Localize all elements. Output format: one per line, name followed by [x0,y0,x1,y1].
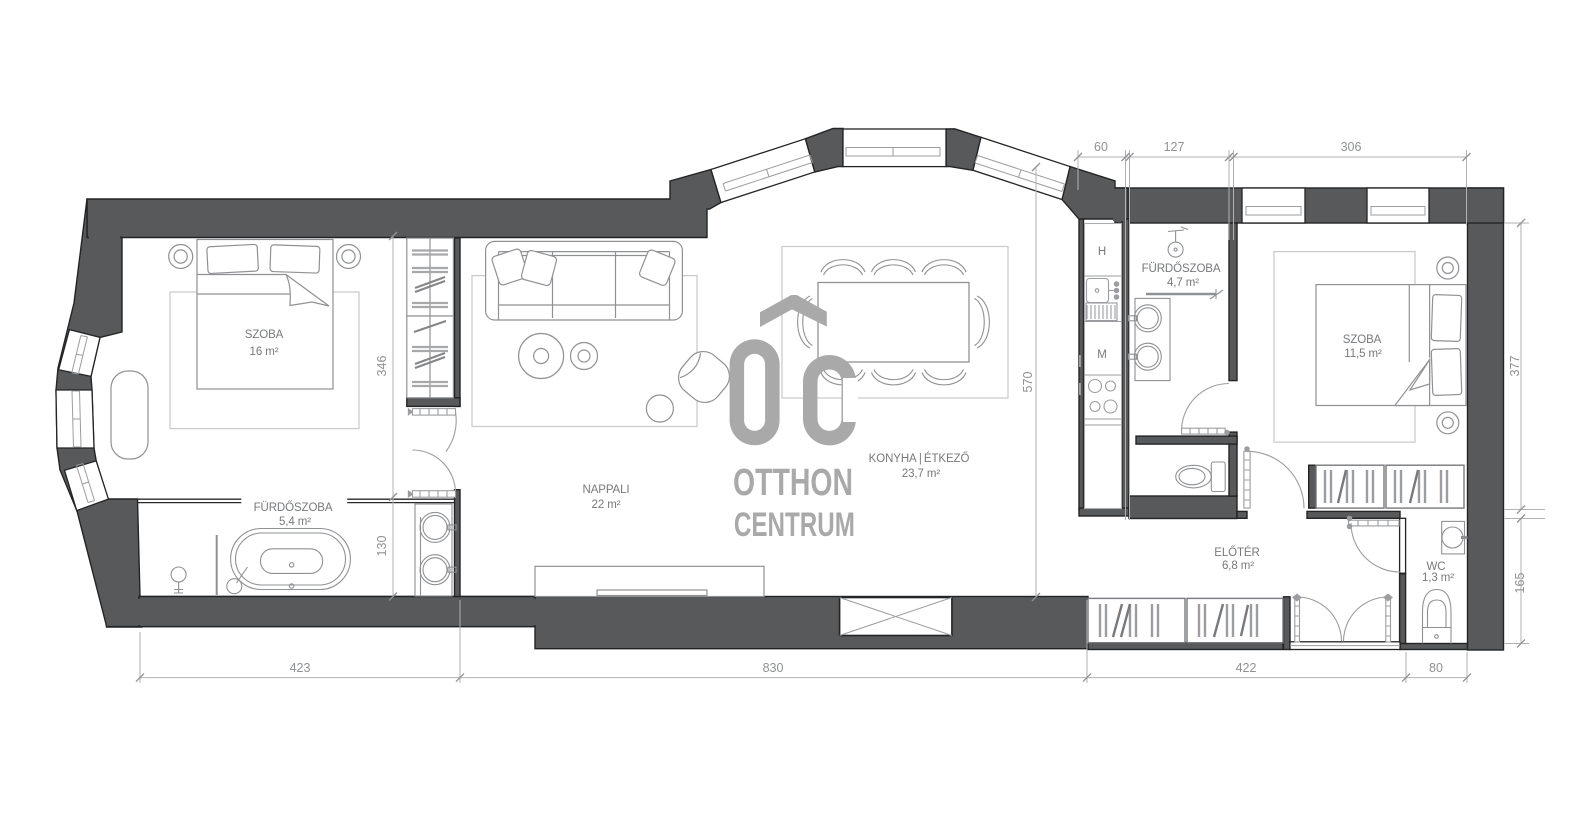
svg-text:KONYHA | ÉTKEZŐ: KONYHA | ÉTKEZŐ [869,451,970,465]
svg-text:306: 306 [1341,140,1362,154]
svg-text:346: 346 [375,356,389,377]
svg-text:ELŐTÉR: ELŐTÉR [1214,545,1259,559]
svg-text:830: 830 [763,661,784,675]
svg-text:6,8 m²: 6,8 m² [1222,560,1254,572]
svg-text:422: 422 [1236,661,1257,675]
svg-text:377: 377 [1508,356,1522,377]
svg-text:60: 60 [1094,140,1108,154]
svg-text:423: 423 [290,661,311,675]
svg-text:CENTRUM: CENTRUM [734,506,855,544]
svg-text:80: 80 [1429,661,1443,675]
svg-text:16 m²: 16 m² [250,346,279,358]
svg-text:127: 127 [1164,140,1185,154]
svg-text:SZOBA: SZOBA [245,329,284,341]
svg-text:22 m²: 22 m² [592,499,621,511]
svg-text:FÜRDŐSZOBA: FÜRDŐSZOBA [1142,261,1221,275]
svg-text:570: 570 [1021,372,1035,393]
svg-text:165: 165 [1513,573,1527,594]
svg-text:FÜRDŐSZOBA: FÜRDŐSZOBA [254,500,333,514]
svg-text:NAPPALI: NAPPALI [582,484,629,496]
svg-text:SZOBA: SZOBA [1343,334,1382,346]
svg-text:1,3 m²: 1,3 m² [1422,572,1454,584]
svg-text:5,4 m²: 5,4 m² [279,516,311,528]
svg-text:130: 130 [375,536,389,557]
svg-text:4,7 m²: 4,7 m² [1167,277,1199,289]
svg-text:23,7 m²: 23,7 m² [902,468,941,480]
svg-text:OTTHON: OTTHON [733,462,853,504]
svg-text:M: M [1097,349,1106,361]
svg-text:H: H [1098,246,1106,258]
svg-text:11,5 m²: 11,5 m² [1344,348,1382,360]
